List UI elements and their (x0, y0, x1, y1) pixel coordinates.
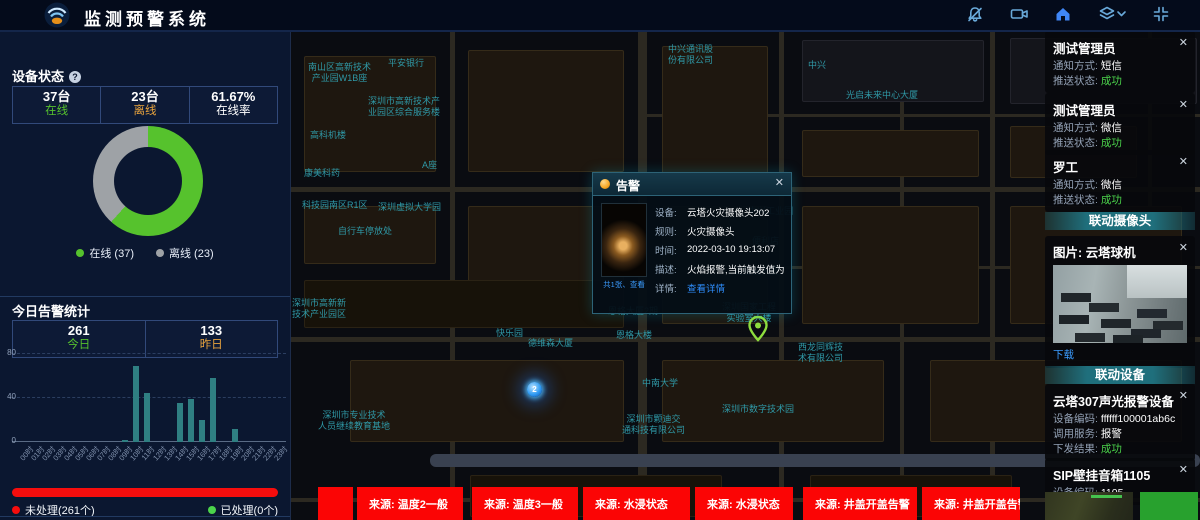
map-label: 光启未来中心大厦 (846, 90, 918, 101)
alarm-ticker-item[interactable]: 来源: 井盖开盖告警 (922, 487, 1020, 520)
map-label: 中南大学 (642, 378, 678, 389)
device-row: 下发结果: 成功 (1053, 443, 1187, 456)
linked-device-card: 云塔307声光报警设备✕设备编码: ffffff100001ab6c调用服务: … (1045, 384, 1195, 461)
green-dot-icon (208, 506, 216, 514)
legend-label: 在线 (37) (89, 245, 134, 261)
map-label: 深圳市高新新 技术产业园区 (292, 298, 346, 320)
map-label: A座 (422, 160, 437, 171)
notification-value: 成功 (1101, 194, 1122, 206)
notification-row: 推送状态: 成功 (1053, 75, 1187, 88)
red-dot-icon (12, 506, 20, 514)
y-tick: 80 (0, 348, 16, 357)
bar (188, 399, 194, 442)
bar (144, 393, 150, 442)
close-icon[interactable]: ✕ (1179, 155, 1188, 168)
page-title: 监测预警系统 (84, 5, 210, 30)
help-icon[interactable]: ? (69, 71, 81, 83)
alarm-field-label: 规则: (655, 224, 687, 238)
alarm-field-label: 详情: (655, 281, 687, 295)
map-label: 深圳虚拟大学园 (378, 202, 441, 213)
legend-dot-icon (156, 249, 164, 257)
map-road (450, 30, 455, 520)
map-block (802, 130, 979, 177)
close-icon[interactable]: ✕ (775, 176, 784, 189)
map-label: 科技园南区R1区 (302, 200, 368, 211)
legend-dot-icon (76, 249, 84, 257)
device-status-title: 设备状态? (0, 62, 290, 89)
bar (122, 440, 128, 442)
device-snapshot-green-image[interactable] (1140, 492, 1198, 520)
alarm-ticker-item[interactable]: 来源: 水浸状态 (583, 487, 690, 520)
map-label: 中兴通讯股 份有限公司 (668, 44, 713, 66)
home-icon[interactable] (1054, 4, 1074, 24)
linked-cameras-header: 联动摄像头 (1045, 212, 1195, 230)
legend-item: 离线 (23) (156, 245, 214, 261)
notification-value: 微信 (1101, 122, 1122, 134)
bar (177, 403, 183, 442)
notification-row: 推送状态: 成功 (1053, 194, 1187, 207)
device-value: ffffff100001ab6c (1101, 413, 1175, 425)
alarm-field-value: 火灾摄像头 (687, 224, 735, 238)
stat-cell: 23台离线 (100, 87, 188, 123)
snapshot-view-link[interactable]: 共1张、查看 (598, 279, 650, 290)
alarm-ticker-item[interactable]: 来源: 井盖开盖告警 (803, 487, 917, 520)
alarm-snapshot-image[interactable] (601, 203, 647, 277)
bar (133, 366, 139, 442)
map-block (350, 360, 624, 442)
alarm-field-row: 时间:2022-03-10 19:13:07 (655, 240, 785, 259)
notification-recipient: 测试管理员 (1053, 38, 1187, 57)
map-label: 快乐园 (496, 328, 523, 339)
notification-value: 短信 (1101, 60, 1122, 72)
close-icon[interactable]: ✕ (1179, 463, 1188, 476)
download-link[interactable]: 下载 (1053, 347, 1187, 362)
y-tick: 40 (0, 392, 16, 401)
video-camera-icon[interactable] (1010, 4, 1030, 24)
notification-row: 推送状态: 成功 (1053, 137, 1187, 150)
map-label: 高科机楼 (310, 130, 346, 141)
close-icon[interactable]: ✕ (1179, 36, 1188, 49)
alarm-bulb-icon (600, 179, 610, 189)
stat-label: 在线 (13, 105, 100, 118)
alarm-field-label: 描述: (655, 262, 687, 276)
map-label: 平安银行 (388, 58, 424, 69)
month-alarms-title: 本月告警统计 (0, 516, 290, 520)
stat-cell: 37台在线 (13, 87, 100, 123)
gridline-80 (12, 353, 286, 354)
map-label: 西龙同辉技 术有限公司 (798, 342, 843, 364)
device-value: 报警 (1101, 428, 1122, 440)
map-block (662, 360, 884, 442)
stat-cell: 61.67%在线率 (189, 87, 277, 123)
hourly-alarm-bar-chart: 80 40 0 00时01时02时03时04时05时06时07时08时09时10… (0, 348, 290, 478)
notification-recipient: 罗工 (1053, 157, 1187, 176)
stat-value: 61.67% (190, 90, 277, 104)
device-row: 设备编码: ffffff100001ab6c (1053, 413, 1187, 426)
alarm-ticker-item[interactable]: 来源: 温度2一般 (357, 487, 463, 520)
notification-value: 微信 (1101, 179, 1122, 191)
bar (199, 420, 205, 442)
notification-row: 通知方式: 微信 (1053, 179, 1187, 192)
device-row: 调用服务: 报警 (1053, 428, 1187, 441)
top-header: 监测预警系统 (0, 0, 1200, 32)
map-label: 恩格大楼 (616, 330, 652, 341)
camera-card-title: 图片: 云塔球机 (1053, 242, 1187, 261)
notification-recipient: 测试管理员 (1053, 100, 1187, 119)
alarm-ticker-item[interactable] (318, 487, 353, 520)
device-name: 云塔307声光报警设备 (1053, 391, 1187, 410)
alarm-field-value: 2022-03-10 19:13:07 (687, 244, 775, 255)
donut-hole (114, 147, 182, 215)
device-status-table: 37台在线23台离线61.67%在线率 (12, 86, 278, 124)
app-logo-icon (44, 2, 70, 33)
notification-value: 成功 (1101, 137, 1122, 149)
map-label: 康美科药 (304, 168, 340, 179)
map-label: 深圳市数字技术园 (722, 404, 794, 415)
exit-fullscreen-icon[interactable] (1152, 4, 1172, 24)
alarm-field-label: 时间: (655, 243, 687, 257)
alarm-ticker-item[interactable]: 来源: 温度3一般 (472, 487, 578, 520)
unhandled-progress-bar (12, 488, 278, 497)
notification-value: 成功 (1101, 75, 1122, 87)
map-label: 深圳市高新技术产 业园区综合服务楼 (368, 96, 440, 118)
alarm-field-row: 详情:查看详情 (655, 278, 785, 297)
stat-label: 离线 (101, 105, 188, 118)
map-block (304, 280, 624, 328)
alarm-field-row: 描述:火焰报警,当前触发值为... (655, 259, 785, 278)
notification-card: 测试管理员✕通知方式: 短信推送状态: 成功 (1045, 31, 1195, 93)
notification-row: 通知方式: 短信 (1053, 60, 1187, 73)
linked-devices-header: 联动设备 (1045, 366, 1195, 384)
alarm-field-row: 设备:云塔火灾摄像头202 (655, 202, 785, 221)
alarm-popup-header: 告警 ✕ (593, 173, 791, 196)
map-label: 深圳市专业技术 人员继续教育基地 (318, 410, 390, 432)
close-icon[interactable]: ✕ (1179, 241, 1188, 254)
donut-legend: 在线 (37)离线 (23) (0, 245, 290, 261)
device-snapshot-image[interactable] (1045, 492, 1133, 520)
stat-value: 261 (13, 324, 145, 338)
alarm-field-row: 规则:火灾摄像头 (655, 221, 785, 240)
stat-value: 37台 (13, 90, 100, 104)
left-stats-panel: 设备状态? 37台在线23台离线61.67%在线率 在线 (37)离线 (23)… (0, 30, 291, 520)
bell-off-icon[interactable] (966, 4, 986, 24)
map-block (802, 206, 979, 324)
y-tick: 0 (0, 436, 16, 445)
map-label: 自行车停放处 (338, 226, 392, 237)
map-label: 中兴 (808, 60, 826, 71)
legend-label: 离线 (23) (169, 245, 214, 261)
stat-value: 133 (146, 324, 278, 338)
camera-snapshot-image (1053, 265, 1187, 343)
device-location-marker[interactable]: 2 (527, 382, 542, 397)
alarm-ticker-item[interactable]: 来源: 水浸状态 (695, 487, 793, 520)
bar (232, 429, 238, 442)
map-label: 南山区高新技术 产业园W1B座 (308, 62, 371, 84)
legend-item: 在线 (37) (76, 245, 134, 261)
alarm-popup-title: 告警 (616, 177, 640, 194)
close-icon[interactable]: ✕ (1179, 98, 1188, 111)
alarm-location-pin[interactable] (748, 316, 768, 347)
alarm-field-label: 设备: (655, 205, 687, 219)
notification-card: 罗工✕通知方式: 微信推送状态: 成功 (1045, 150, 1195, 212)
linked-camera-card: 图片: 云塔球机 ✕ 下载 (1045, 236, 1195, 368)
close-icon[interactable]: ✕ (1179, 389, 1188, 402)
alarm-field-value: 云塔火灾摄像头202 (687, 205, 769, 219)
notification-row: 通知方式: 微信 (1053, 122, 1187, 135)
layers-icon[interactable] (1098, 4, 1128, 24)
monitoring-dashboard: 中兴通讯股 份有限公司中兴光启未来中心大厦南山区高新技术 产业园W1B座平安银行… (0, 0, 1200, 520)
stat-label: 在线率 (190, 105, 277, 118)
map-label: 深圳市颗迪交 通科技有限公司 (622, 414, 685, 436)
alarm-field-value: 火焰报警,当前触发值为... (687, 262, 785, 276)
device-name: SIP壁挂音箱1105 (1053, 465, 1187, 484)
map-label: 德维森大厦 (528, 338, 573, 349)
stat-value: 23台 (101, 90, 188, 104)
map-block (468, 50, 624, 172)
view-details-link[interactable]: 查看详情 (687, 281, 725, 295)
map-road (990, 30, 995, 520)
alarm-popup: 告警 ✕ 共1张、查看 设备:云塔火灾摄像头202规则:火灾摄像头时间:2022… (592, 172, 792, 314)
bar (210, 378, 216, 443)
notification-card: 测试管理员✕通知方式: 微信推送状态: 成功 (1045, 93, 1195, 155)
device-value: 成功 (1101, 443, 1122, 455)
